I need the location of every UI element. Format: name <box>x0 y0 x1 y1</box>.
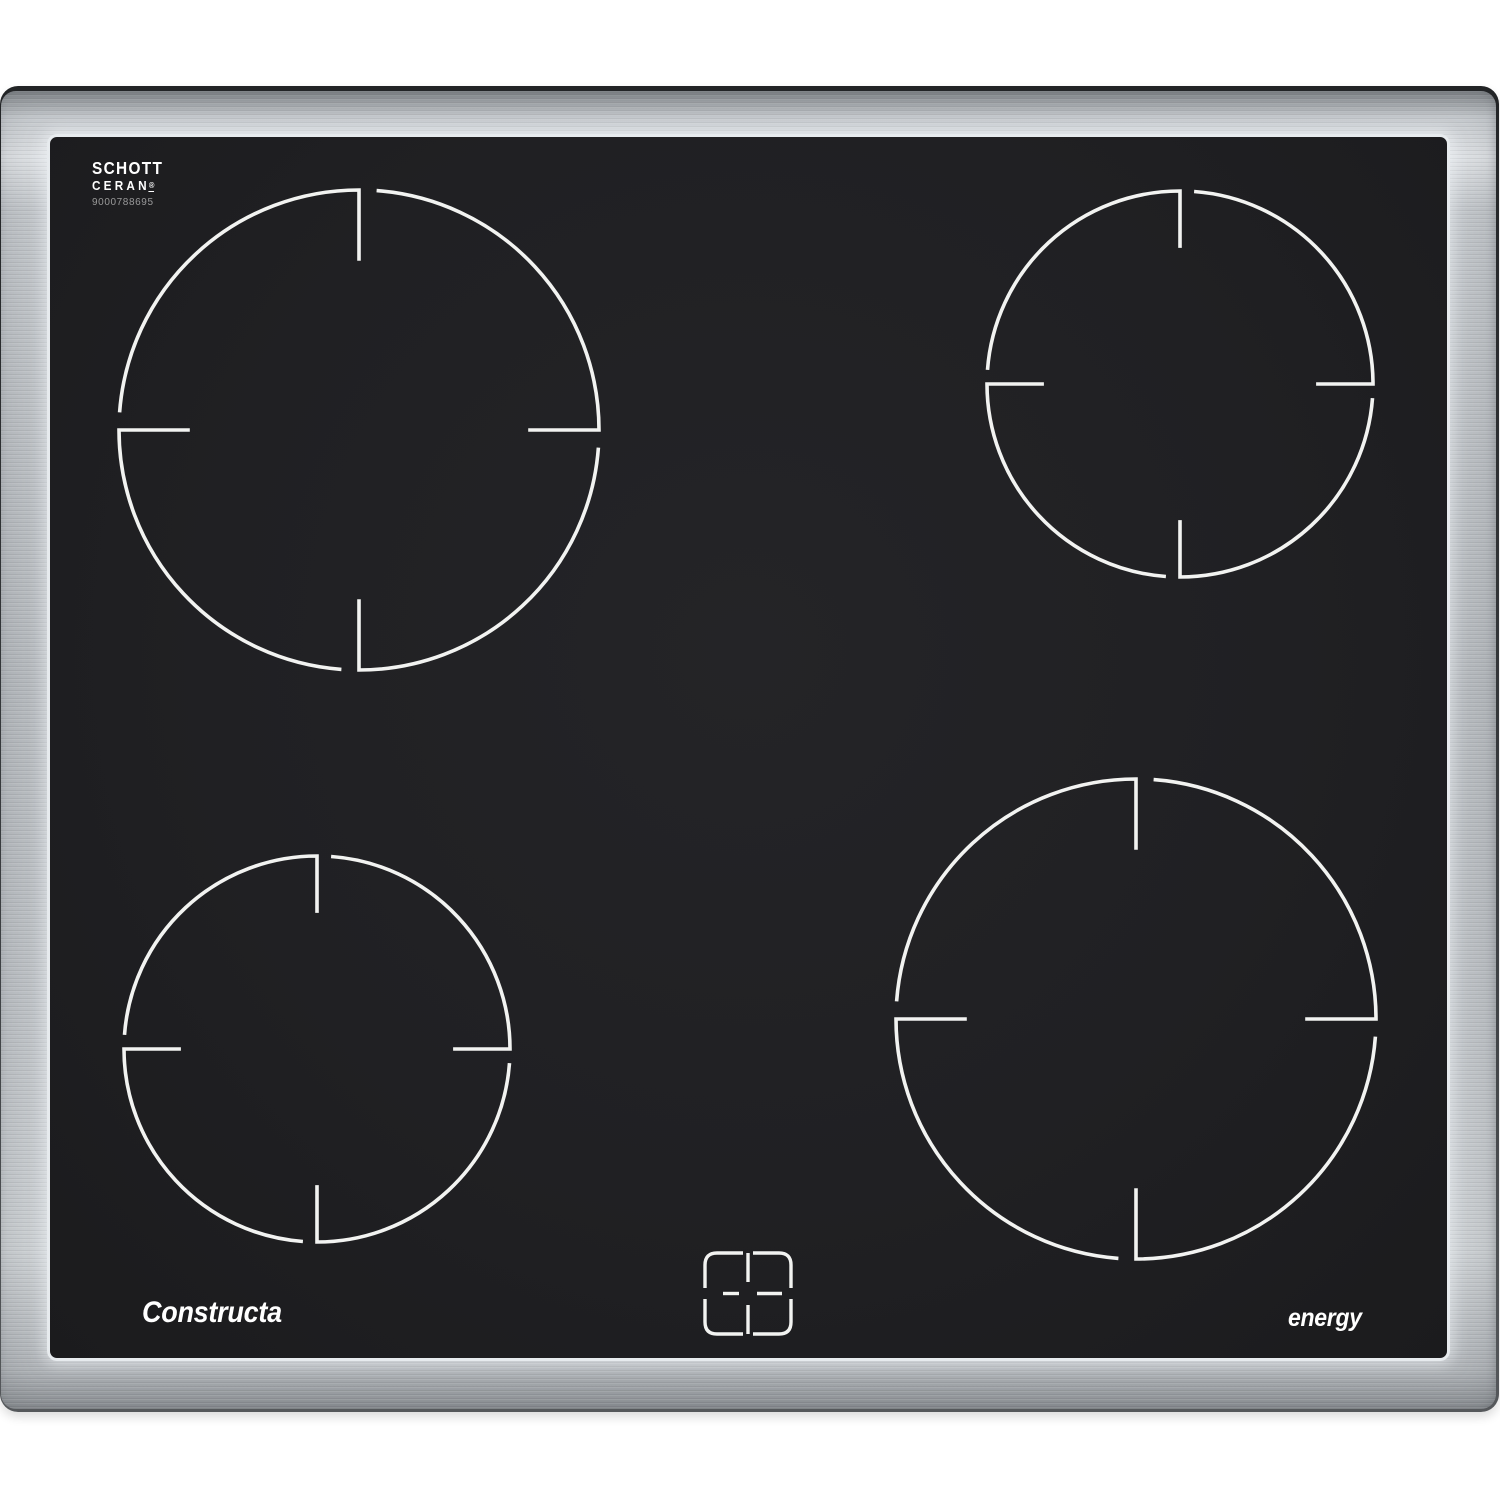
registered-trademark-icon: ® <box>149 182 155 192</box>
schott-ceran-logo-line2: CERAN® <box>92 180 168 193</box>
schott-ceran-logo-line1: SCHOTT <box>92 160 163 178</box>
energy-label: energy <box>1288 1304 1362 1333</box>
cooktop-outer-edge <box>0 86 1499 1412</box>
four-zone-indicator-icon <box>703 1251 794 1338</box>
serial-number: 9000788695 <box>92 197 154 208</box>
constructa-logo: Constructa <box>142 1296 282 1330</box>
stainless-steel-frame <box>1 91 1496 1409</box>
schott-ceran-logo: SCHOTT CERAN® <box>92 160 173 192</box>
product-photo: SCHOTT CERAN® 9000788695 Constructa ener… <box>0 0 1500 1500</box>
ceramic-glass-surface <box>47 134 1450 1361</box>
